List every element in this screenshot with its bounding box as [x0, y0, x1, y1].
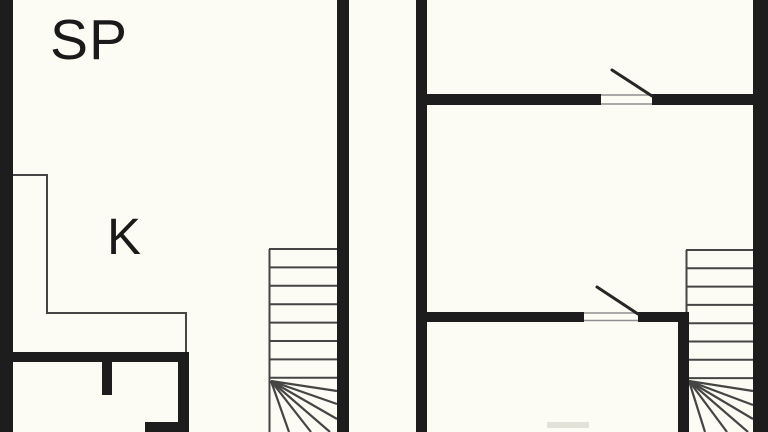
floor-plan-drawing: SP K: [0, 0, 768, 432]
wall-segment: [652, 94, 768, 105]
wall-segment: [427, 312, 584, 322]
wall-segment: [416, 0, 427, 432]
room-label-sp: SP: [50, 8, 128, 72]
wall-segment: [102, 362, 112, 395]
wall-segment: [0, 0, 13, 432]
floor-plan-page: SP K: [0, 0, 768, 432]
wall-segment: [427, 94, 601, 105]
faint-wall-hint: [547, 422, 589, 428]
wall-segment: [753, 0, 768, 432]
wall-segment: [0, 352, 189, 362]
wall-segment: [145, 422, 189, 432]
wall-segment: [337, 0, 349, 432]
wall-segment: [178, 352, 189, 432]
room-label-k: K: [107, 208, 141, 265]
wall-segment: [678, 312, 689, 432]
